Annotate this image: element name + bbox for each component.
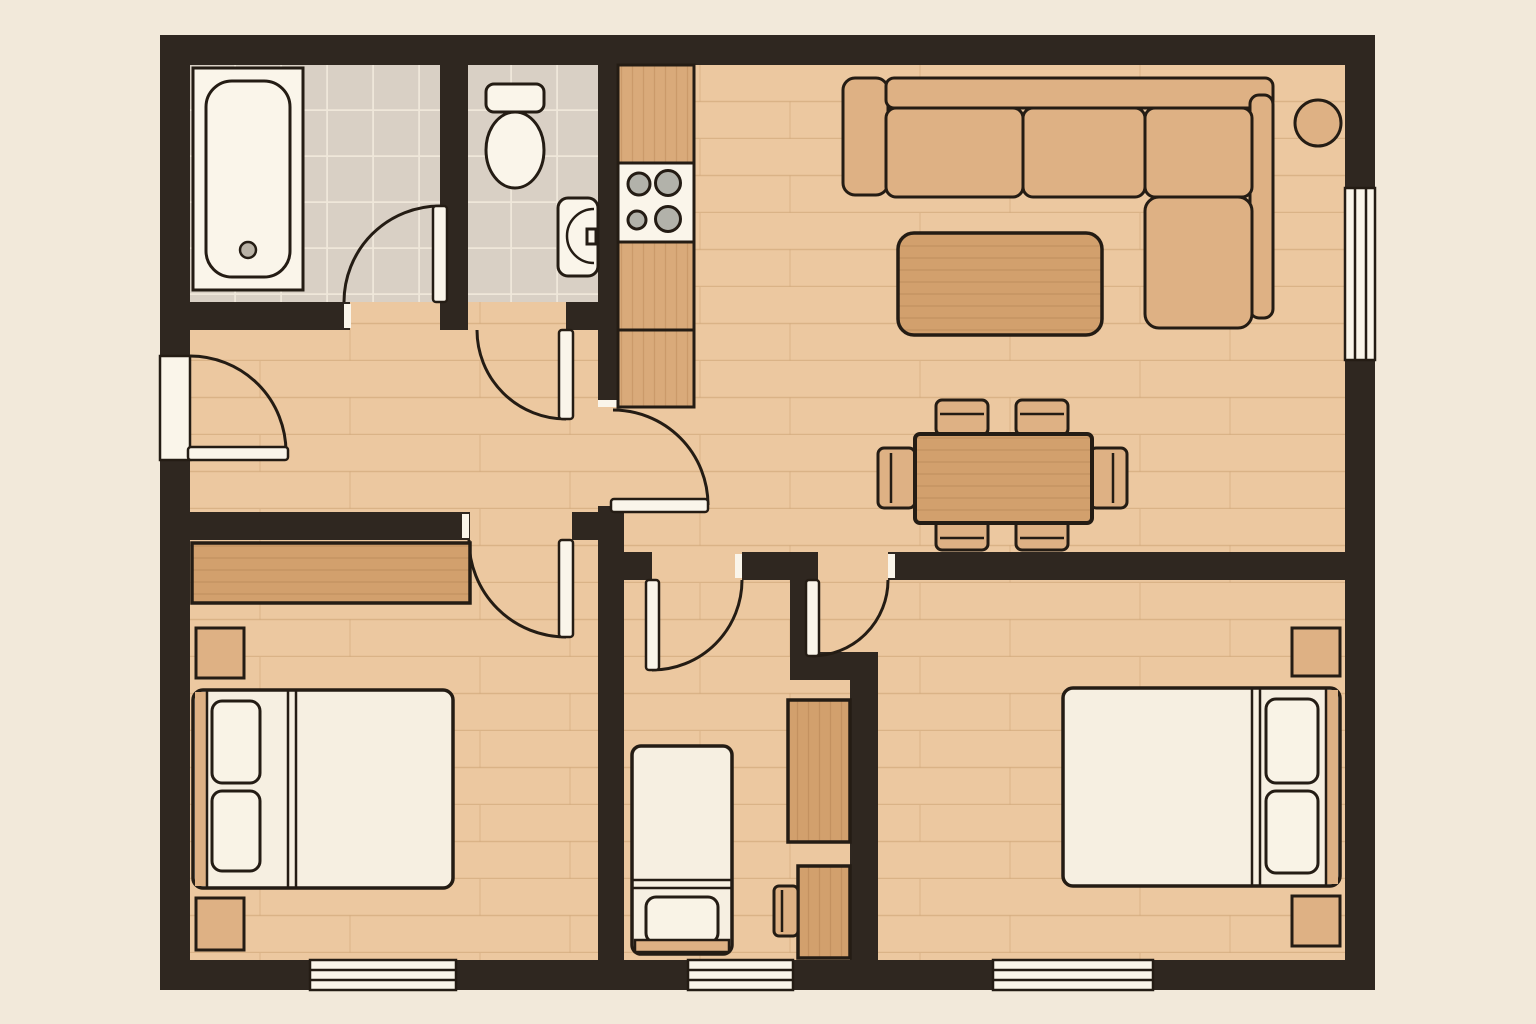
double-bed xyxy=(1063,688,1340,886)
desk xyxy=(798,866,850,958)
kitchen-cabinet-lower xyxy=(618,330,694,407)
sofa-seat-cushion xyxy=(1145,108,1252,197)
toilet-tank xyxy=(486,84,544,112)
nightstand xyxy=(196,628,244,678)
floor-plan-drawing xyxy=(0,0,1536,1024)
wall-bathroom-south xyxy=(160,302,350,330)
wall-small-room-north-1 xyxy=(624,552,652,580)
jamb-tick xyxy=(888,554,895,578)
outer-wall-bottom-3 xyxy=(793,960,993,990)
outer-wall-bottom-1 xyxy=(160,960,310,990)
sofa-armrest xyxy=(843,78,888,195)
window-small-room xyxy=(688,960,793,990)
wall-wc-south-stub xyxy=(566,302,598,330)
dining-chair xyxy=(936,400,988,435)
entrance-opening xyxy=(160,356,190,460)
nightstand xyxy=(1292,628,1340,676)
jamb-tick xyxy=(462,514,469,538)
door-leaf xyxy=(646,580,659,670)
window-living-room xyxy=(1345,188,1375,360)
single-bed xyxy=(632,746,732,954)
kitchen-cabinet-upper xyxy=(618,65,694,163)
outer-wall-top xyxy=(160,35,1375,65)
bed-footboard xyxy=(635,940,729,952)
wall-sink xyxy=(558,198,598,276)
pillow xyxy=(212,791,260,871)
double-bed xyxy=(193,690,453,888)
bathtub-drain xyxy=(240,242,256,258)
jamb-tick xyxy=(344,304,351,328)
cooktop xyxy=(618,163,694,242)
outer-wall-bottom-4 xyxy=(1153,960,1375,990)
outer-wall-right-lower xyxy=(1345,360,1375,990)
window-bedroom-left xyxy=(310,960,456,990)
door-leaf xyxy=(559,330,573,419)
sofa-seat-cushion xyxy=(886,108,1023,197)
door-leaf xyxy=(611,499,708,512)
kitchen-cabinet-middle xyxy=(618,242,694,330)
wall-bedrooms-divider-west xyxy=(598,506,624,960)
sofa-back xyxy=(886,78,1273,108)
toilet xyxy=(486,84,544,188)
sofa-seat-cushion xyxy=(1023,108,1145,197)
wall-small-bedroom-divider-lower xyxy=(850,652,878,960)
nightstand xyxy=(196,898,244,950)
dining-chair xyxy=(1090,448,1127,508)
burner xyxy=(628,211,646,229)
wall-bedroom-left-north-1 xyxy=(160,512,470,540)
coffee-table xyxy=(898,233,1102,335)
desk-chair xyxy=(774,886,798,936)
pillow xyxy=(646,897,718,943)
door-leaf xyxy=(806,580,819,656)
burner xyxy=(628,173,650,195)
window-bedroom-right xyxy=(993,960,1153,990)
floor-plan-page xyxy=(0,0,1536,1024)
door-leaf xyxy=(433,206,447,302)
pillow xyxy=(212,701,260,783)
headboard xyxy=(1326,690,1338,884)
jamb-tick xyxy=(735,554,742,578)
bathroom xyxy=(193,68,303,290)
pillow xyxy=(1266,791,1318,873)
outer-wall-bottom-2 xyxy=(456,960,688,990)
toilet-bowl xyxy=(486,112,544,188)
jamb-tick xyxy=(598,400,618,407)
wall-wc-kitchen xyxy=(598,65,618,407)
dining-table xyxy=(915,434,1092,523)
nightstand xyxy=(1292,896,1340,946)
wall-bedroom-left-north-2 xyxy=(572,512,624,540)
burner xyxy=(656,171,681,196)
bathtub xyxy=(193,68,303,290)
headboard xyxy=(195,692,207,886)
outer-wall-right-upper xyxy=(1345,35,1375,188)
dining-chair xyxy=(878,448,915,508)
round-side-table xyxy=(1295,100,1341,146)
door-leaf xyxy=(559,540,573,637)
wardrobe xyxy=(192,543,470,603)
door-leaf xyxy=(188,447,288,460)
wall-bedroom-right-north xyxy=(888,552,1345,580)
sofa-chaise-cushion xyxy=(1145,197,1252,328)
bedroom-left xyxy=(192,543,470,950)
wardrobe xyxy=(788,700,850,842)
sink-faucet xyxy=(587,229,596,244)
kitchen xyxy=(618,65,694,407)
pillow xyxy=(1266,699,1318,783)
burner xyxy=(656,207,681,232)
dining-chair xyxy=(1016,400,1068,435)
